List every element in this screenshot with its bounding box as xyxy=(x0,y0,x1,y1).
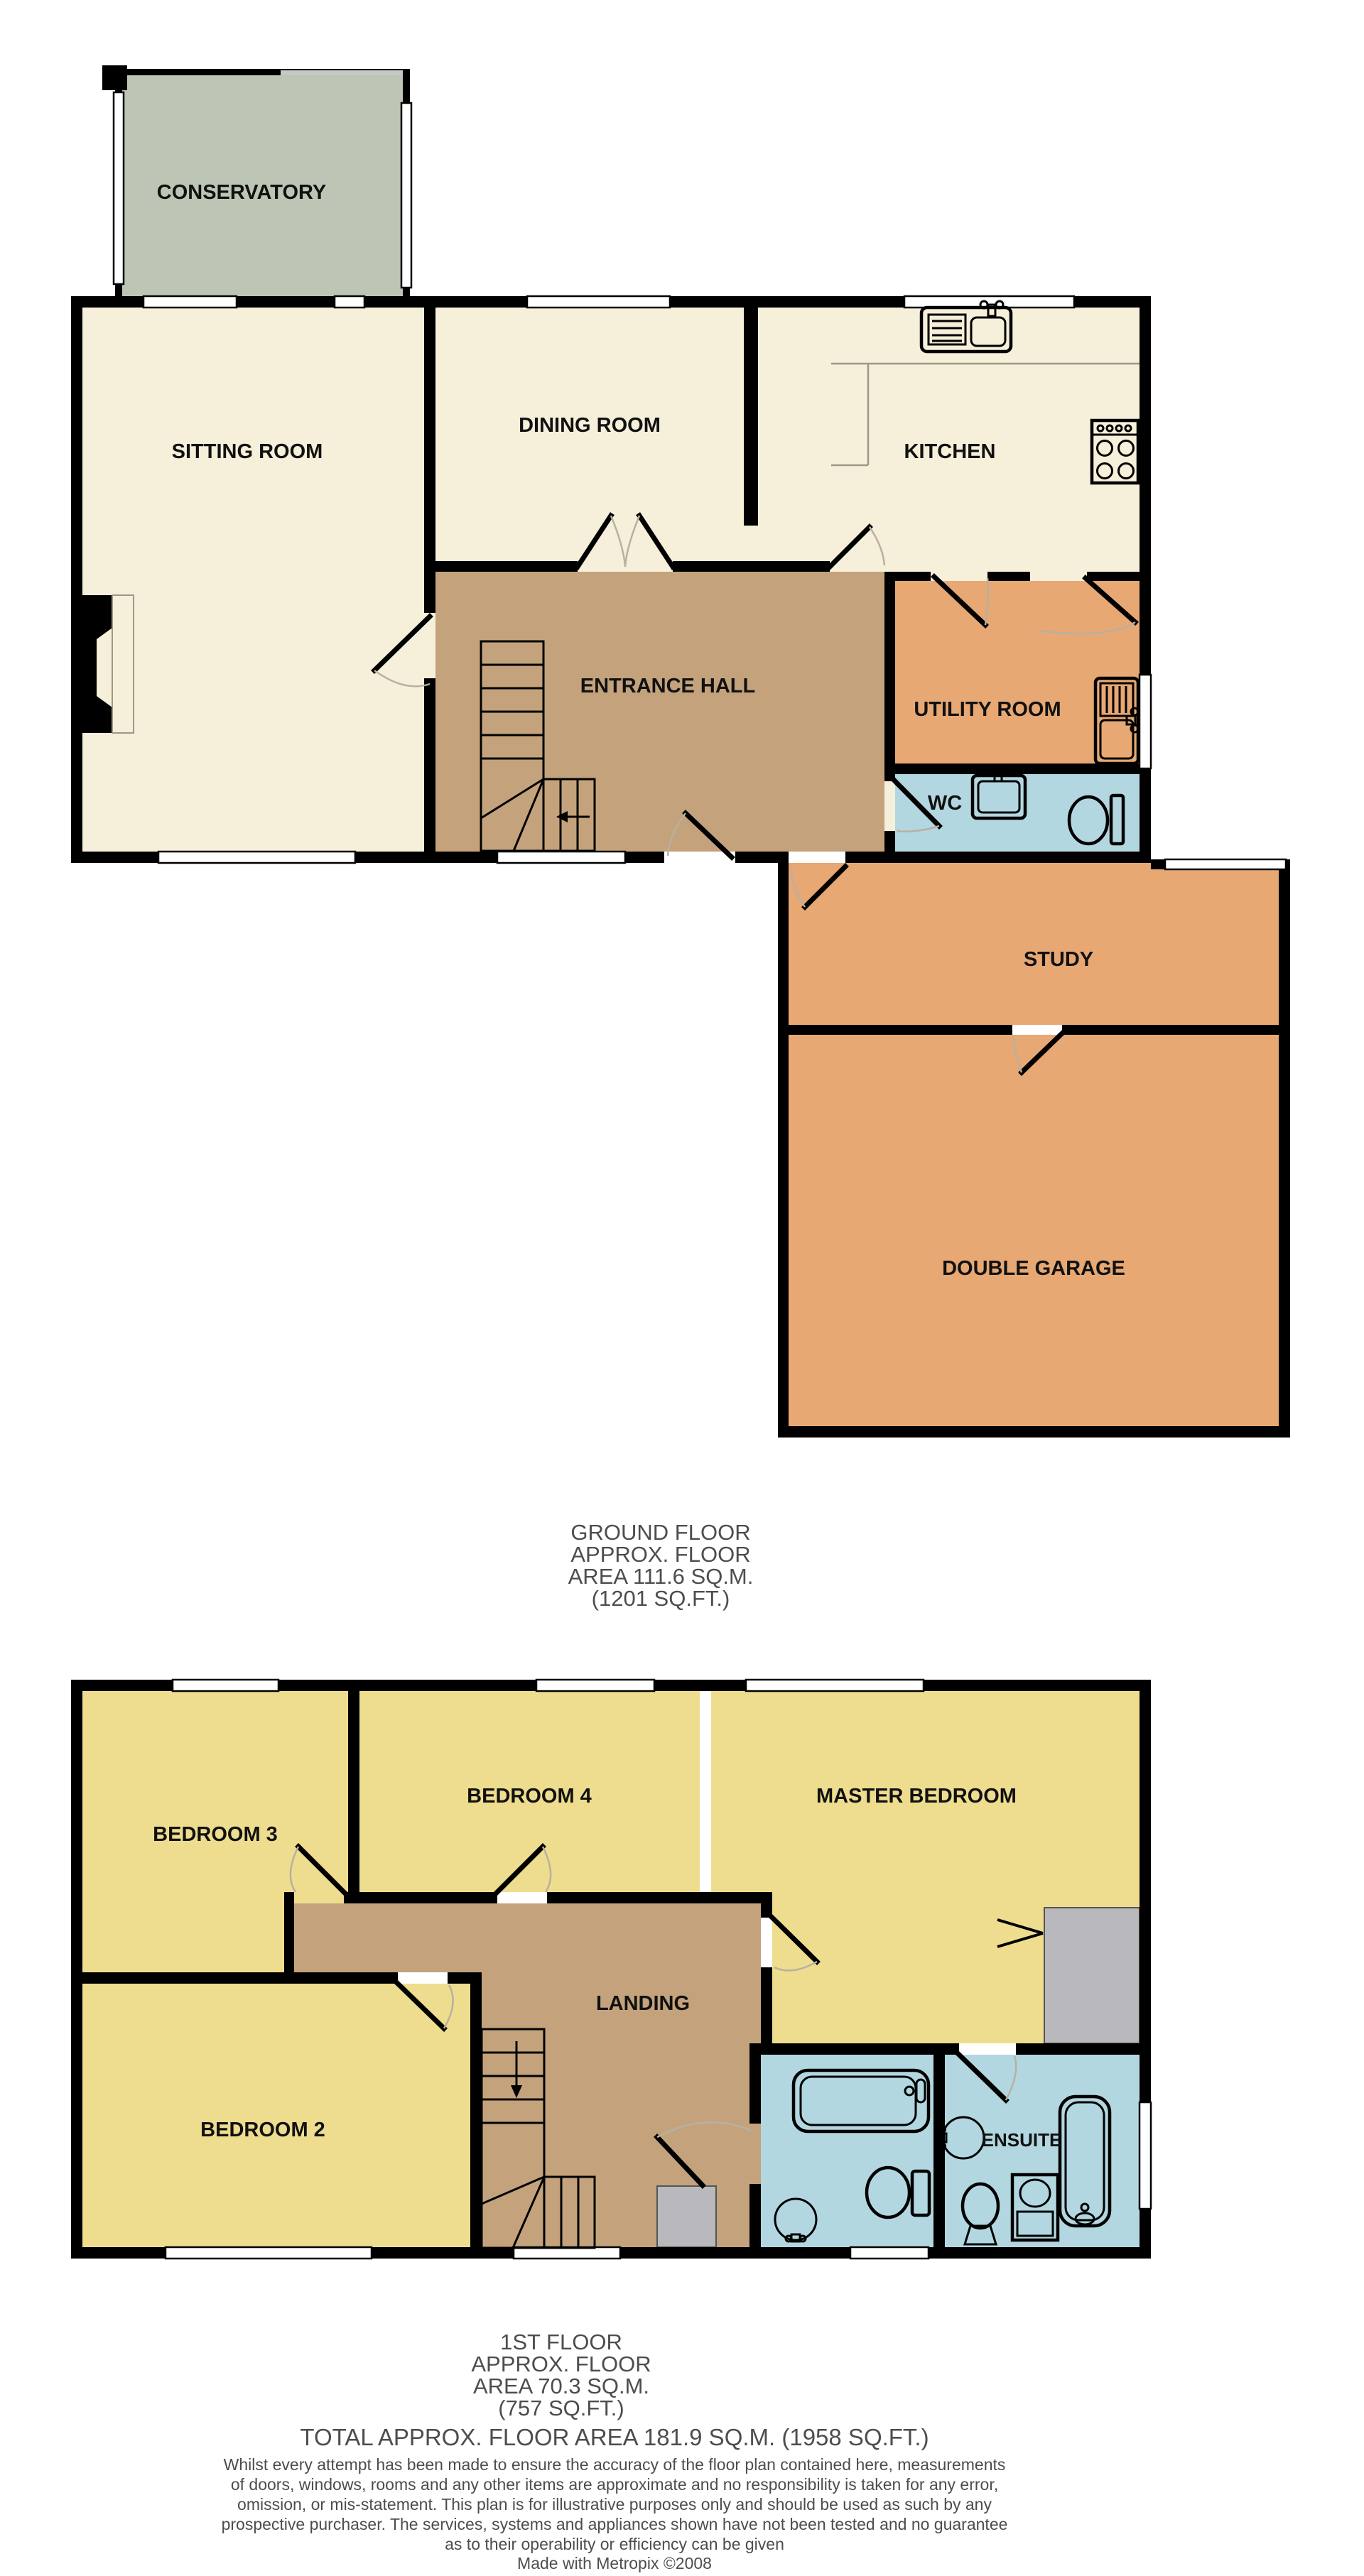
room-label-bedroom3: BEDROOM 3 xyxy=(153,1823,278,1846)
room-label-bedroom2: BEDROOM 2 xyxy=(200,2119,325,2141)
fireplace xyxy=(71,595,134,733)
wall-segment xyxy=(1279,859,1290,1438)
room-label-kitchen: KITCHEN xyxy=(904,440,996,463)
wall-segment xyxy=(1140,296,1151,863)
wall-segment xyxy=(435,561,578,572)
back-door xyxy=(1140,675,1151,768)
caption-line: 1ST FLOOR xyxy=(500,2330,622,2354)
window xyxy=(401,103,411,288)
wall-segment xyxy=(987,572,1030,581)
wall-segment xyxy=(789,1025,1012,1035)
caption-line: AREA 111.6 SQ.M. xyxy=(568,1564,754,1589)
room-label-master: MASTER BEDROOM xyxy=(816,1785,1017,1808)
footer: TOTAL APPROX. FLOOR AREA 181.9 SQ.M. (19… xyxy=(222,2424,1008,2572)
wardrobe-cupboard xyxy=(1044,1908,1140,2043)
credit-text: Made with Metropix ©2008 xyxy=(517,2554,712,2572)
room-label-dining: DINING ROOM xyxy=(519,414,661,437)
room-label-conservatory: CONSERVATORY xyxy=(157,181,327,204)
wall-segment xyxy=(749,2184,761,2247)
wall-segment xyxy=(424,678,435,852)
window xyxy=(335,296,364,308)
wall-segment xyxy=(470,1972,482,2247)
window xyxy=(114,92,124,284)
bathroom-floor xyxy=(761,2055,933,2247)
floorplan-page: CONSERVATORY SITTING ROOM DINING ROOM KI… xyxy=(0,0,1364,2576)
window xyxy=(536,1680,654,1691)
room-label-landing: LANDING xyxy=(596,1992,690,2015)
wall-segment xyxy=(884,572,895,781)
wall-segment xyxy=(348,1680,359,1903)
wall-segment xyxy=(884,831,895,852)
hearth xyxy=(112,595,134,733)
room-label-wc: WC xyxy=(928,792,962,815)
garage-floor xyxy=(789,1035,1279,1426)
caption-line: (757 SQ.FT.) xyxy=(498,2396,624,2420)
window xyxy=(1140,2102,1151,2209)
wall-segment xyxy=(294,1972,398,1984)
wall-segment xyxy=(744,296,758,526)
utility-floor xyxy=(895,581,1140,763)
room-label-hall: ENTRANCE HALL xyxy=(580,675,756,697)
conservatory-glazing xyxy=(281,70,403,75)
landing-floor xyxy=(294,1903,482,1972)
wall-segment xyxy=(761,1967,772,2055)
caption-line: APPROX. FLOOR xyxy=(471,2352,651,2376)
first-floor-plan: BEDROOM 3 BEDROOM 4 MASTER BEDROOM LANDI… xyxy=(71,1680,1151,2259)
window xyxy=(850,2247,929,2259)
room-label-ensuite: ENSUITE xyxy=(982,2129,1062,2151)
wall-segment xyxy=(778,1426,1290,1438)
window xyxy=(158,852,355,863)
wall-segment xyxy=(772,2043,959,2055)
wall-segment xyxy=(284,1892,294,1984)
wall-segment xyxy=(749,2043,761,2124)
wall-segment xyxy=(673,561,830,572)
caption-line: (1201 SQ.FT.) xyxy=(592,1586,730,1611)
floorplan-drawing: CONSERVATORY SITTING ROOM DINING ROOM KI… xyxy=(0,0,1364,2576)
ground-floor-caption: GROUND FLOOR APPROX. FLOOR AREA 111.6 SQ… xyxy=(568,1520,754,1611)
landing-floor xyxy=(711,1903,761,2043)
study-floor xyxy=(789,863,1279,1025)
disclaimer-line: omission, or mis-statement. This plan is… xyxy=(237,2495,992,2513)
disclaimer-line: Whilst every attempt has been made to en… xyxy=(224,2455,1006,2474)
wall-segment xyxy=(71,296,82,863)
caption-line: GROUND FLOOR xyxy=(570,1520,750,1545)
window xyxy=(497,852,625,863)
caption-line: APPROX. FLOOR xyxy=(570,1542,750,1567)
wall-segment xyxy=(933,2055,945,2247)
window xyxy=(144,296,237,308)
wall-segment xyxy=(424,296,435,613)
wall-segment xyxy=(547,1892,772,1903)
wall-segment xyxy=(71,1680,82,2259)
fireplace-recess xyxy=(97,628,112,707)
disclaimer-line: of doors, windows, rooms and any other i… xyxy=(231,2475,998,2494)
wall-segment xyxy=(778,863,789,1426)
wall-segment xyxy=(1062,1025,1279,1035)
ground-floor-plan: CONSERVATORY SITTING ROOM DINING ROOM KI… xyxy=(71,65,1290,1438)
ff-room-fills xyxy=(82,1691,1140,2247)
study-door-opening xyxy=(789,852,845,863)
wall-segment xyxy=(71,1972,294,1984)
window xyxy=(1165,859,1286,869)
room-label-sitting: SITTING ROOM xyxy=(172,440,323,463)
wall-corner-post xyxy=(102,65,127,90)
window xyxy=(527,296,670,308)
gf-room-fills xyxy=(82,73,1279,1426)
disclaimer-line: prospective purchaser. The services, sys… xyxy=(222,2515,1008,2533)
wall-segment xyxy=(1087,572,1140,581)
room-label-study: STUDY xyxy=(1024,948,1093,971)
caption-line: AREA 70.3 SQ.M. xyxy=(473,2374,649,2398)
wall-segment xyxy=(344,1892,497,1903)
bedroom2-floor xyxy=(82,1984,470,2247)
wall-segment xyxy=(895,572,931,581)
room-label-garage: DOUBLE GARAGE xyxy=(942,1257,1125,1280)
disclaimer-line: as to their operability or efficiency ca… xyxy=(445,2535,784,2553)
window xyxy=(166,2247,372,2259)
wall-segment xyxy=(1016,2043,1140,2055)
window xyxy=(173,1680,278,1691)
total-area-text: TOTAL APPROX. FLOOR AREA 181.9 SQ.M. (19… xyxy=(300,2424,929,2450)
airing-cupboard xyxy=(657,2186,716,2247)
first-floor-caption: 1ST FLOOR APPROX. FLOOR AREA 70.3 SQ.M. … xyxy=(471,2330,651,2420)
room-label-bedroom4: BEDROOM 4 xyxy=(467,1785,592,1808)
room-label-utility: UTILITY ROOM xyxy=(914,698,1061,721)
window xyxy=(746,1680,924,1691)
wall-segment xyxy=(761,1903,772,1918)
